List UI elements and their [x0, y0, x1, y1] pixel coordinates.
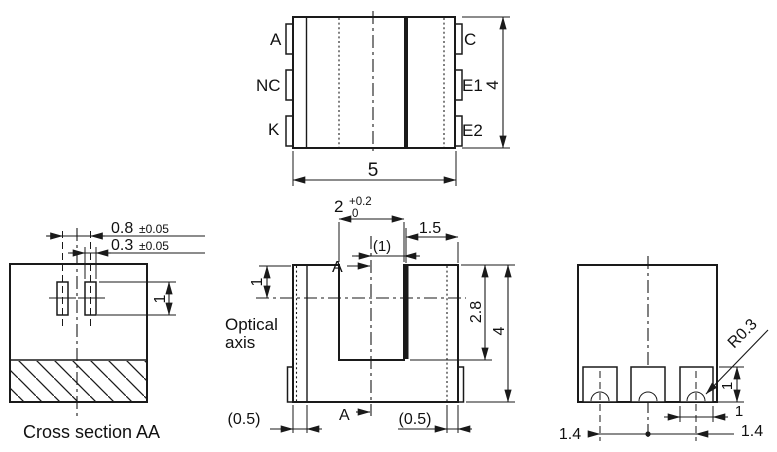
- section-marker-bottom-label: A: [339, 407, 350, 424]
- dim-text-slot-width: 2: [334, 197, 343, 216]
- dim-text-aperture-width: 0.3: [111, 237, 133, 254]
- dim-text-pad-width: 1: [735, 403, 743, 420]
- optical-axis-label-1: Optical: [225, 315, 278, 334]
- dim-text-aperture-height: 1: [152, 294, 169, 303]
- dim-top-step: 1: [249, 266, 291, 298]
- pin-label-a: A: [270, 30, 282, 49]
- dim-text-slot-width-tol-upper: +0.2: [349, 196, 372, 208]
- pin-label-c: C: [464, 30, 476, 49]
- dim-text-notch-radius: R0.3: [725, 316, 761, 352]
- dim-text-aperture-width-tol: ±0.05: [139, 239, 169, 253]
- dim-text-slot-depth: 2.8: [468, 301, 485, 323]
- pin-label-e1: E1: [462, 76, 483, 95]
- dim-text-top-right: 1.5: [419, 220, 441, 237]
- pin-label-nc: NC: [256, 76, 281, 95]
- hatch-region: [11, 361, 146, 401]
- dim-text-body-depth: 4: [483, 80, 502, 89]
- dim-text-pad-pitch-left: 1.4: [559, 426, 581, 443]
- pin-label-k: K: [268, 120, 280, 139]
- dim-aperture-pitch: 0.8 ±0.05: [46, 220, 205, 237]
- dim-text-pad-pitch-right: 1.4: [741, 423, 763, 440]
- dim-center-to-wall: (1): [352, 238, 420, 256]
- side-view: R0.3 1 1 1.4 1.4: [559, 256, 768, 443]
- pin-tab-k: [286, 116, 293, 146]
- dim-text-aperture-pitch-tol: ±0.05: [139, 222, 169, 236]
- pin-tab-e2: [455, 116, 462, 146]
- dim-shared-point: [645, 431, 650, 436]
- section-marker-top-label: A: [332, 259, 343, 276]
- pin-tab-a: [286, 24, 293, 54]
- dim-body-width: 5: [293, 151, 456, 186]
- front-view: Optical axis 2 +0.2 0 1.5 (1) A: [225, 196, 515, 433]
- dim-text-slot-width-tol-lower: 0: [352, 208, 358, 220]
- top-view-body: [293, 17, 455, 148]
- dim-text-aperture-pitch: 0.8: [111, 220, 133, 237]
- section-marker-top: A: [332, 259, 370, 276]
- pin-tab-nc: [286, 70, 293, 100]
- pin-label-e2: E2: [462, 121, 483, 140]
- dim-text-wall-right: (0.5): [399, 411, 432, 428]
- dim-front-height: 4: [466, 265, 515, 402]
- dim-slot-width: 2 +0.2 0: [334, 196, 404, 262]
- dim-text-pad-height: 1: [719, 382, 736, 390]
- top-view: A NC K C E1 E2 5 4: [256, 11, 510, 186]
- dim-text-wall-left: (0.5): [228, 411, 261, 428]
- drawing-canvas: A NC K C E1 E2 5 4: [0, 0, 777, 452]
- dim-text-center-to-wall: (1): [373, 238, 391, 255]
- dim-text-body-width: 5: [368, 160, 379, 181]
- pin-tab-e1: [455, 70, 462, 100]
- dim-text-top-step: 1: [249, 277, 266, 286]
- dim-text-front-height: 4: [491, 326, 508, 335]
- cross-section-caption: Cross section AA: [23, 422, 160, 442]
- dim-pad-pitch: 1.4 1.4: [559, 423, 763, 443]
- dim-wall-right: (0.5): [398, 405, 472, 433]
- technical-drawing: A NC K C E1 E2 5 4: [0, 0, 777, 452]
- front-view-body: [293, 265, 458, 402]
- section-marker-bottom: A: [339, 407, 370, 424]
- dim-wall-left: (0.5): [228, 405, 322, 433]
- pad-center: [631, 367, 665, 402]
- dim-pad-width: 1: [664, 403, 743, 422]
- pin-tab-c: [455, 24, 462, 54]
- optical-axis-label-2: axis: [225, 333, 255, 352]
- cross-section-view: 0.8 ±0.05 0.3 ±0.05 1 Cross section AA: [10, 220, 205, 442]
